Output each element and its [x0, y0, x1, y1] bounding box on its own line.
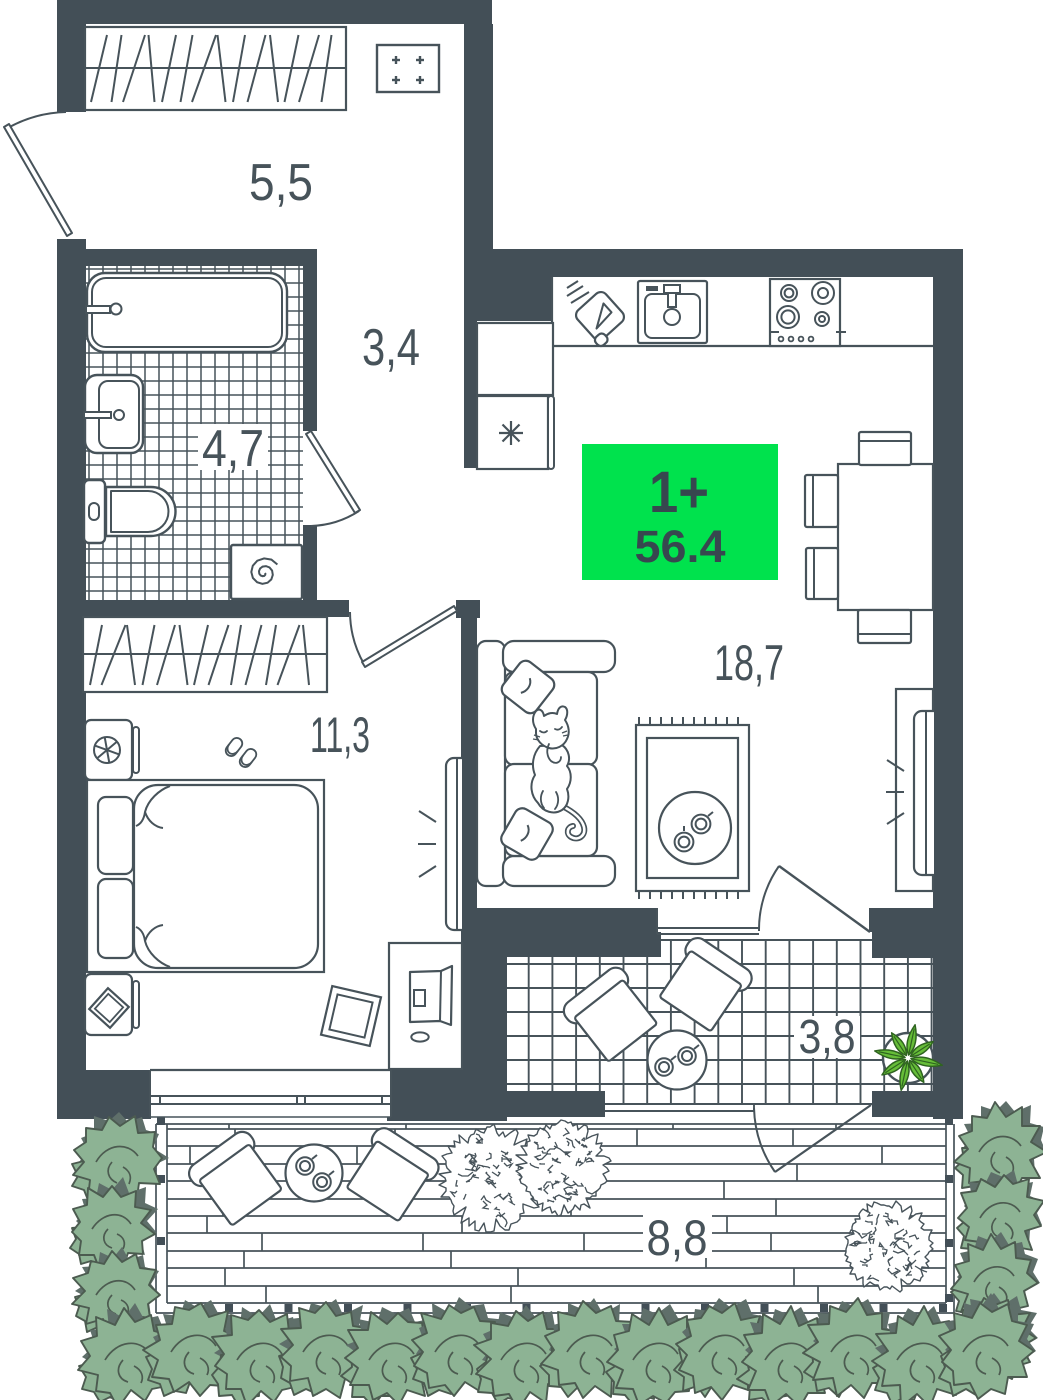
svg-text:3,8: 3,8 [799, 1011, 856, 1064]
svg-text:11,3: 11,3 [310, 707, 370, 763]
svg-text:4,7: 4,7 [202, 420, 264, 478]
svg-text:5,5: 5,5 [249, 154, 313, 212]
svg-text:3,4: 3,4 [362, 319, 420, 377]
svg-text:18,7: 18,7 [714, 635, 784, 691]
svg-text:56.4: 56.4 [635, 521, 726, 572]
svg-text:8,8: 8,8 [647, 1210, 708, 1266]
svg-text:1+: 1+ [649, 460, 709, 525]
